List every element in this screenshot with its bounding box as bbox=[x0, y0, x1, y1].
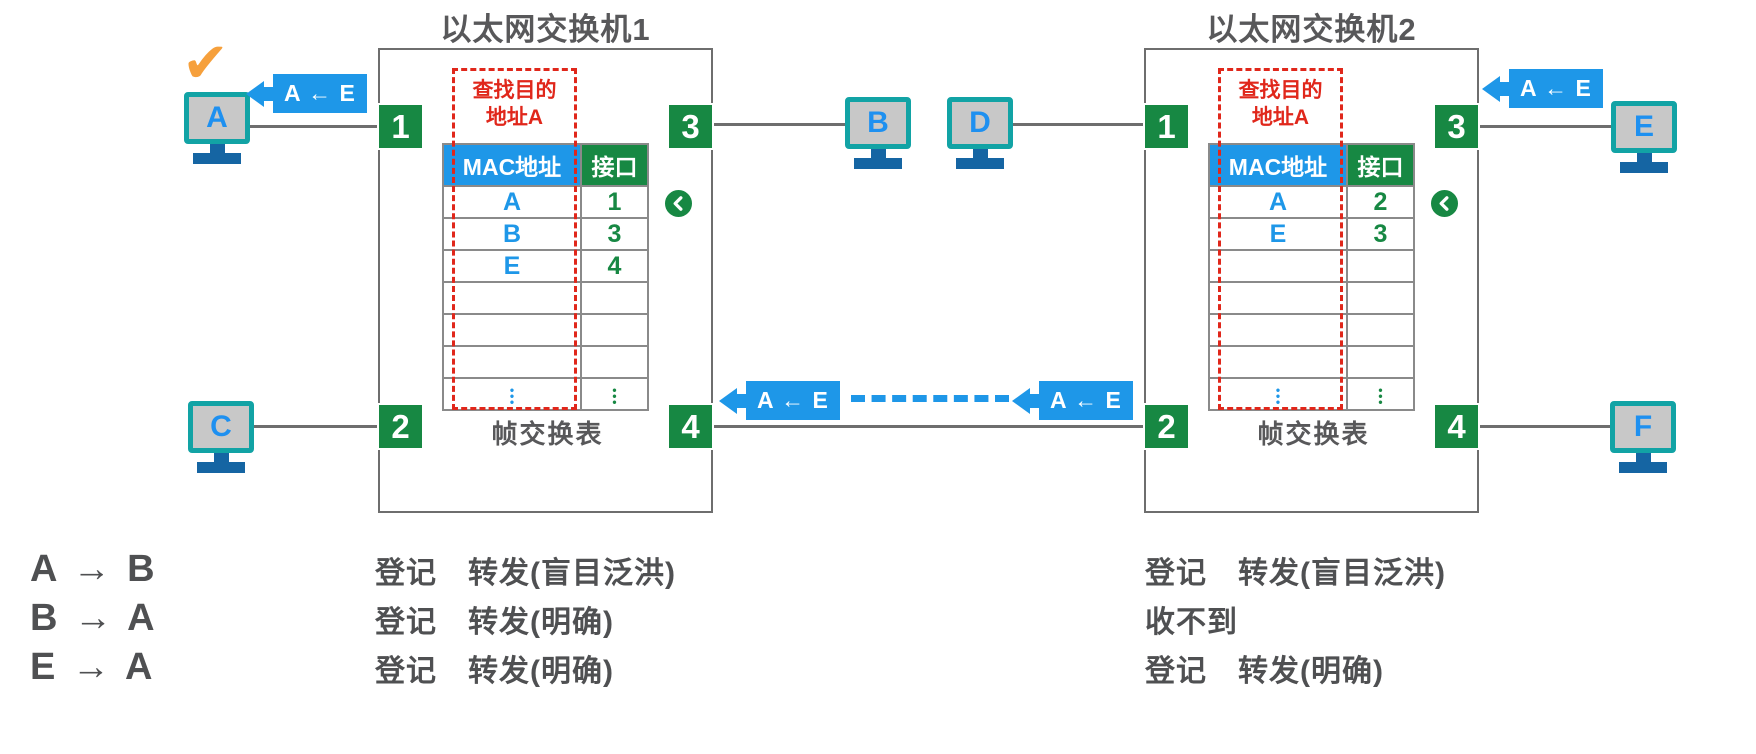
left-arrow-icon bbox=[1482, 76, 1500, 102]
lookup-note: 查找目的 地址A bbox=[452, 77, 577, 131]
link-host-d-port1 bbox=[1013, 123, 1144, 126]
flow-e-to-a: E → A bbox=[30, 644, 158, 693]
host-e-label: E bbox=[1634, 110, 1654, 144]
switch2-result-row3: 登记 转发(明确) bbox=[1145, 649, 1446, 698]
interface-cell bbox=[581, 282, 648, 314]
interface-cell bbox=[1347, 314, 1414, 346]
frame-label: A ← E bbox=[273, 74, 367, 113]
interface-cell: 1 bbox=[581, 186, 648, 218]
frame-table-caption: 帧交换表 bbox=[1146, 414, 1481, 451]
interface-cell bbox=[581, 346, 648, 378]
left-arrow-icon bbox=[1012, 388, 1030, 414]
host-f: F bbox=[1610, 401, 1676, 473]
interface-header: 接口 bbox=[581, 144, 648, 186]
interface-header: 接口 bbox=[1347, 144, 1414, 186]
host-e: E bbox=[1611, 101, 1677, 173]
monitor-stand bbox=[1636, 453, 1651, 462]
interface-cell bbox=[581, 314, 648, 346]
flow-b-to-a: B → A bbox=[30, 595, 158, 644]
host-a: A bbox=[184, 92, 250, 164]
monitor-icon: E bbox=[1611, 101, 1677, 153]
switch1-result-row1: 登记 转发(盲目泛洪) bbox=[375, 551, 676, 600]
switch2-result-column: 登记 转发(盲目泛洪) 收不到 登记 转发(明确) bbox=[1145, 551, 1446, 698]
chevron-left-icon bbox=[1429, 188, 1460, 219]
interface-cell: 2 bbox=[1347, 186, 1414, 218]
switch1-result-column: 登记 转发(盲目泛洪) 登记 转发(明确) 登记 转发(明确) bbox=[375, 551, 676, 698]
lookup-note-line2: 地址A bbox=[452, 104, 577, 131]
switch1-title: 以太网交换机1 bbox=[378, 4, 713, 49]
switch1-result-row3: 登记 转发(明确) bbox=[375, 649, 676, 698]
host-c: C bbox=[188, 401, 254, 473]
frame-label: A ← E bbox=[746, 381, 840, 420]
link-port3-host-e bbox=[1480, 125, 1611, 128]
host-c-label: C bbox=[210, 410, 232, 444]
monitor-stand bbox=[871, 149, 886, 158]
host-a-label: A bbox=[206, 101, 228, 135]
interface-cell bbox=[1347, 346, 1414, 378]
switch2-result-row2: 收不到 bbox=[1145, 600, 1446, 649]
flow-column: A → B B → A E → A bbox=[30, 546, 158, 693]
interface-cell: • • • bbox=[1347, 378, 1414, 410]
left-arrow-icon bbox=[719, 388, 737, 414]
interface-cell: 3 bbox=[1347, 218, 1414, 250]
switch2-title: 以太网交换机2 bbox=[1144, 4, 1479, 49]
switch2-result-row1: 登记 转发(盲目泛洪) bbox=[1145, 551, 1446, 600]
frame-a-from-e-into-switch2-port3: A ← E bbox=[1482, 69, 1603, 108]
switch1-port-1: 1 bbox=[377, 103, 424, 150]
host-d-label: D bbox=[969, 106, 991, 140]
link-port3-host-b bbox=[714, 123, 845, 126]
monitor-stand bbox=[1637, 153, 1652, 162]
lookup-note-line1: 查找目的 bbox=[1218, 77, 1343, 104]
lookup-note-line1: 查找目的 bbox=[452, 77, 577, 104]
switch2-port-3: 3 bbox=[1433, 103, 1480, 150]
lookup-note-line2: 地址A bbox=[1218, 104, 1343, 131]
monitor-icon: F bbox=[1610, 401, 1676, 453]
monitor-icon: C bbox=[188, 401, 254, 453]
interface-cell bbox=[1347, 250, 1414, 282]
left-arrow-icon bbox=[246, 81, 264, 107]
link-host-c-port2 bbox=[254, 425, 380, 428]
frame-a-from-e-at-host-a: A ← E bbox=[246, 74, 367, 113]
monitor-stand bbox=[214, 453, 229, 462]
flow-a-to-b: A → B bbox=[30, 546, 158, 595]
chevron-left-icon bbox=[663, 188, 694, 219]
success-check-icon: ✔ bbox=[182, 30, 229, 96]
link-host-a-port1 bbox=[250, 125, 380, 128]
link-port4-host-f bbox=[1480, 425, 1610, 428]
ethernet-switch-2: 1 2 3 4 查找目的 地址A MAC地址 接口 A2E3• • •• • •… bbox=[1144, 48, 1479, 513]
frame-flow-dashed-line bbox=[851, 395, 1009, 402]
slide-canvas: 以太网交换机1 以太网交换机2 1 2 3 4 查找目的 地址A MAC地址 接… bbox=[0, 0, 1756, 754]
interface-cell: 3 bbox=[581, 218, 648, 250]
switch2-port-1: 1 bbox=[1143, 103, 1190, 150]
monitor-icon: B bbox=[845, 97, 911, 149]
monitor-stand bbox=[210, 144, 225, 153]
monitor-icon: A bbox=[184, 92, 250, 144]
switch1-port-3: 3 bbox=[667, 103, 714, 150]
monitor-stand bbox=[973, 149, 988, 158]
interface-cell: 4 bbox=[581, 250, 648, 282]
host-f-label: F bbox=[1634, 410, 1652, 444]
host-b: B bbox=[845, 97, 911, 169]
ethernet-switch-1: 1 2 3 4 查找目的 地址A MAC地址 接口 A1B3E4• • •• •… bbox=[378, 48, 713, 513]
frame-label: A ← E bbox=[1039, 381, 1133, 420]
host-b-label: B bbox=[867, 106, 889, 140]
interface-cell: • • • bbox=[581, 378, 648, 410]
link-trunk-switch1-switch2 bbox=[714, 425, 1144, 428]
frame-table-caption: 帧交换表 bbox=[380, 414, 715, 451]
switch1-result-row2: 登记 转发(明确) bbox=[375, 600, 676, 649]
frame-a-from-e-out-switch2-port2: A ← E bbox=[1012, 381, 1133, 420]
lookup-note: 查找目的 地址A bbox=[1218, 77, 1343, 131]
frame-a-from-e-to-switch1-port4: A ← E bbox=[719, 381, 840, 420]
host-d: D bbox=[947, 97, 1013, 169]
interface-cell bbox=[1347, 282, 1414, 314]
frame-label: A ← E bbox=[1509, 69, 1603, 108]
monitor-icon: D bbox=[947, 97, 1013, 149]
